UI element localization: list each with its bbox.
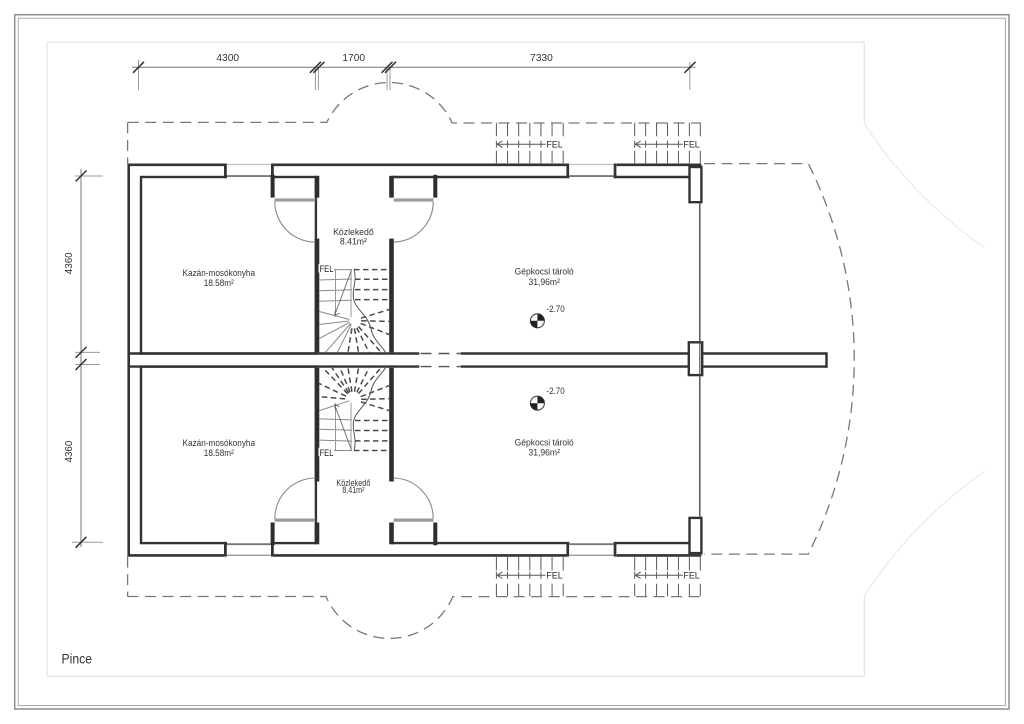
svg-text:Pince: Pince [62,651,93,667]
svg-text:FEL: FEL [320,263,334,274]
svg-text:7330: 7330 [530,53,553,64]
svg-text:FEL: FEL [683,570,699,581]
svg-text:Gépkocsi tároló: Gépkocsi tároló [515,267,574,278]
svg-text:31,96m²: 31,96m² [528,448,560,459]
svg-text:FEL: FEL [320,447,334,458]
svg-text:4360: 4360 [64,440,75,462]
svg-text:-2.70: -2.70 [546,304,564,314]
svg-text:FEL: FEL [683,139,699,150]
svg-text:8.41m²: 8.41m² [342,485,364,495]
svg-text:18.58m²: 18.58m² [204,278,235,289]
svg-text:-2.70: -2.70 [546,386,564,396]
svg-text:18.58m²: 18.58m² [204,448,235,459]
svg-text:8.41m²: 8.41m² [340,236,368,247]
svg-text:4360: 4360 [64,252,75,274]
svg-text:31,96m²: 31,96m² [528,277,560,288]
svg-text:4300: 4300 [216,53,239,64]
svg-text:FEL: FEL [546,570,562,581]
svg-text:FEL: FEL [546,139,562,150]
svg-text:1700: 1700 [342,53,365,64]
